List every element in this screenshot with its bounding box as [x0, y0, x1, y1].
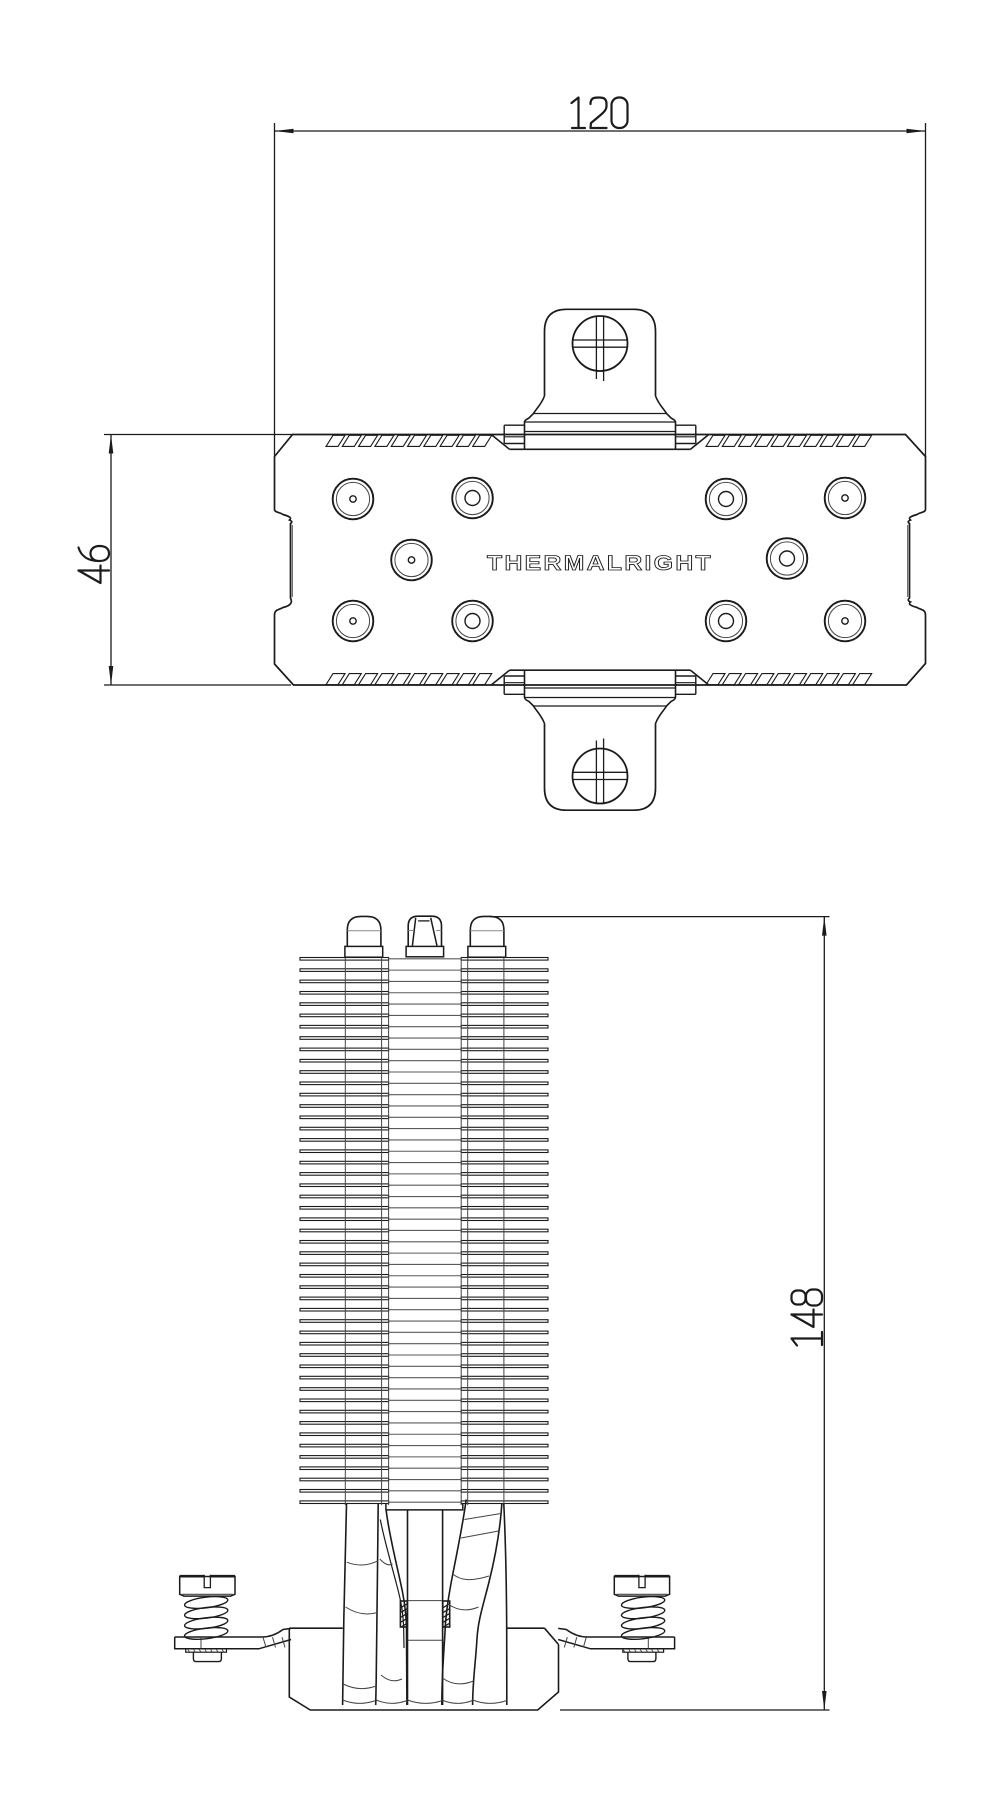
svg-text:THERMALRIGHT: THERMALRIGHT — [487, 552, 713, 575]
